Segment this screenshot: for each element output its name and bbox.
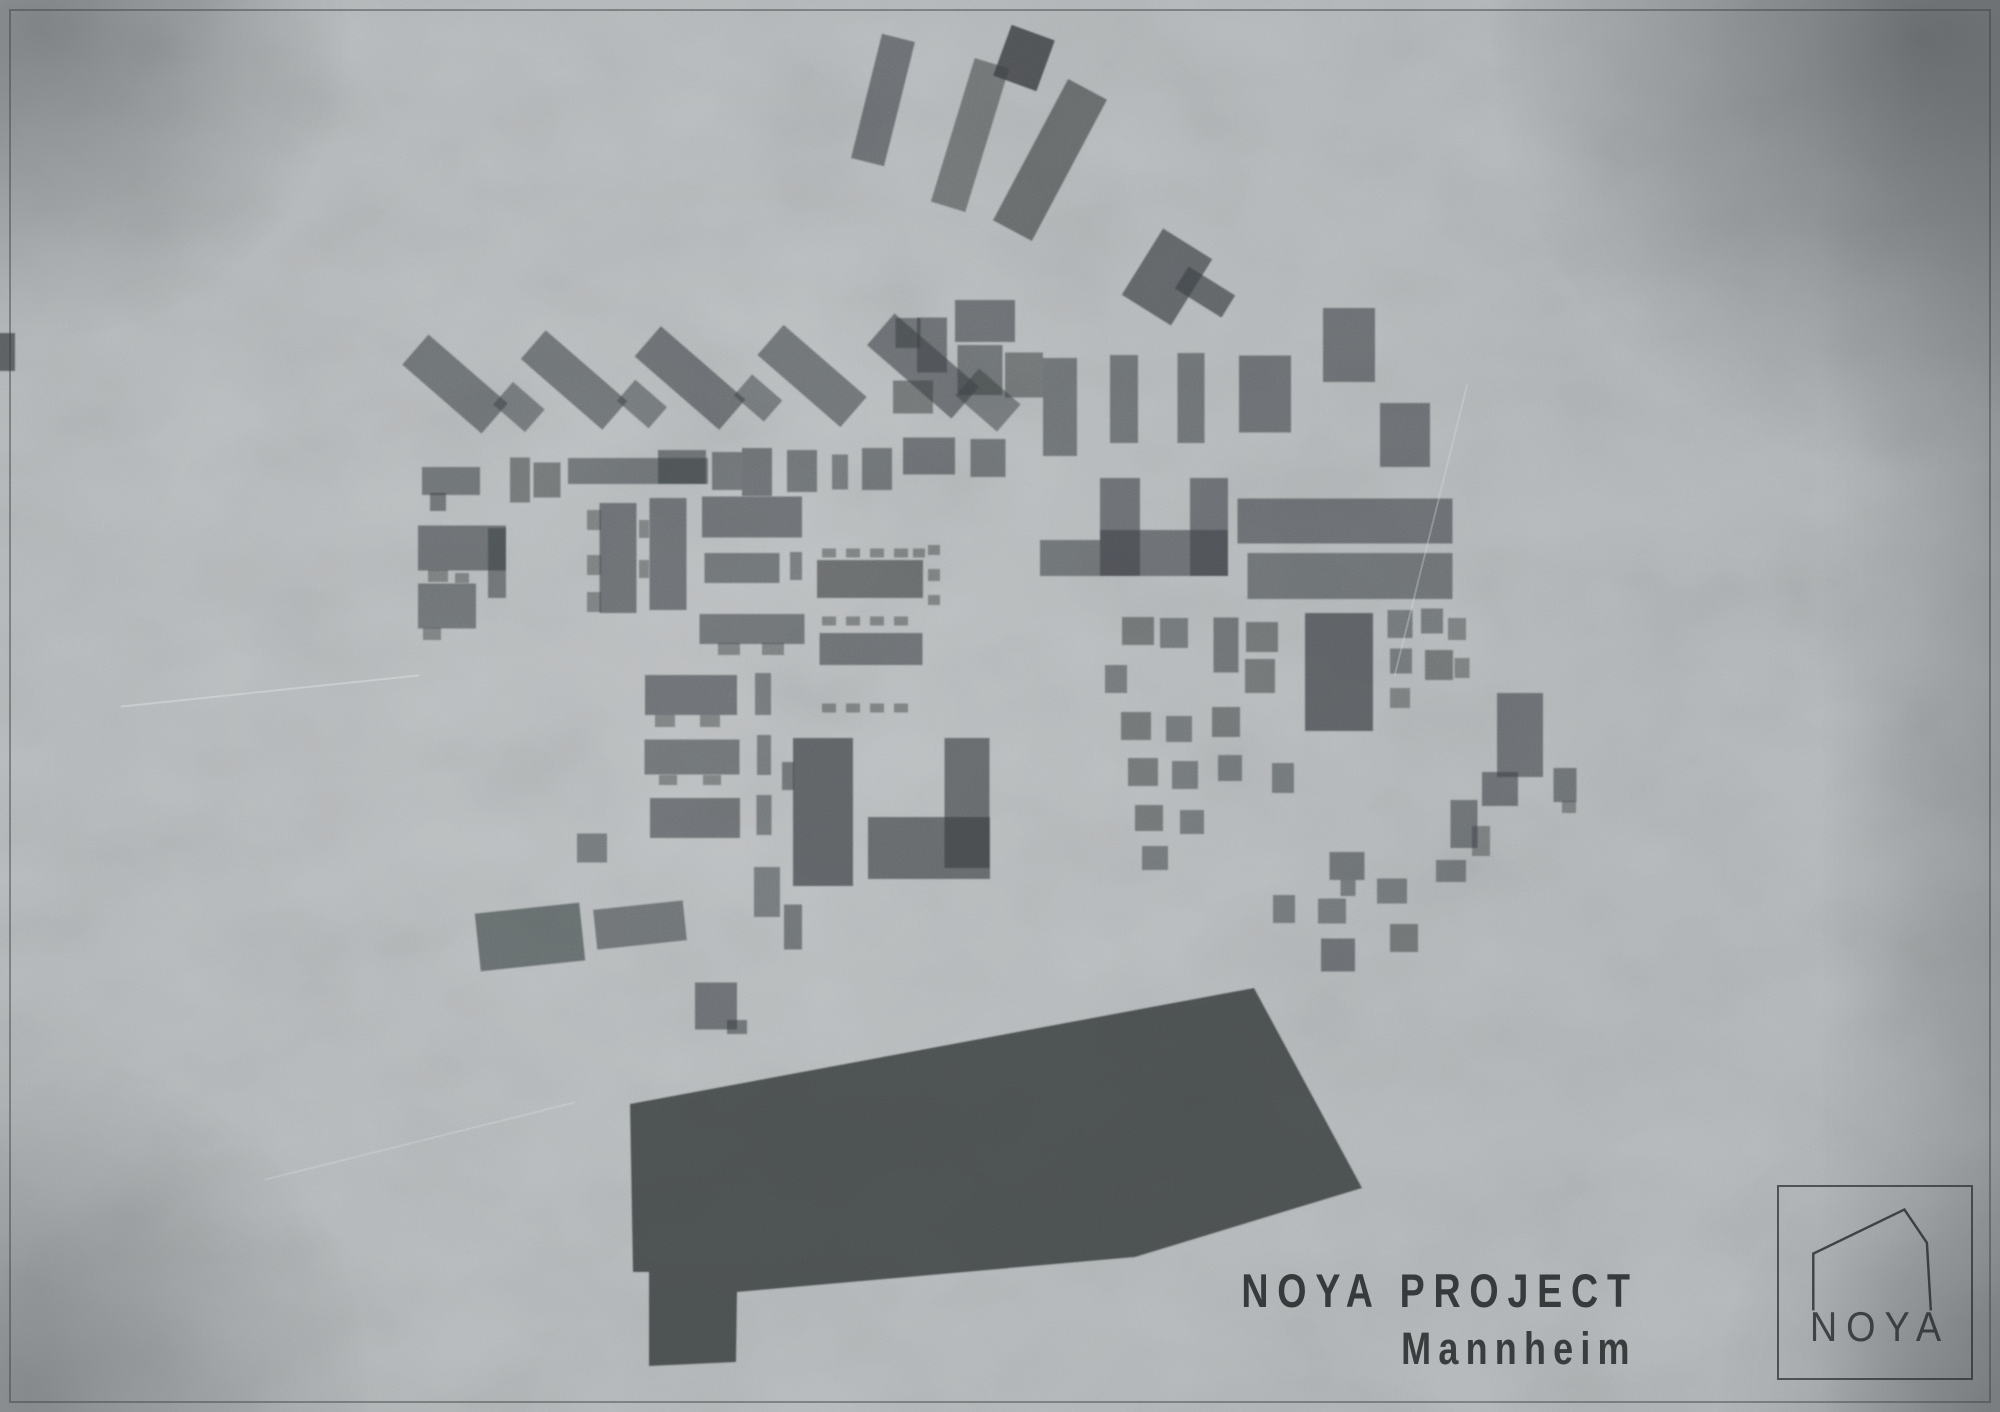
site-plan-map — [0, 0, 2000, 1412]
project-subtitle: Mannheim — [1241, 1327, 1637, 1371]
noya-logo: NOYA — [1777, 1185, 1973, 1380]
title-block: NOYA PROJECT Mannheim — [1142, 1268, 1628, 1371]
vignette — [0, 0, 2000, 1412]
site-plan-poster: NOYA PROJECT Mannheim NOYA — [0, 0, 2000, 1412]
logo-text: NOYA — [1789, 1303, 1971, 1351]
project-title: NOYA PROJECT — [1242, 1268, 1639, 1314]
